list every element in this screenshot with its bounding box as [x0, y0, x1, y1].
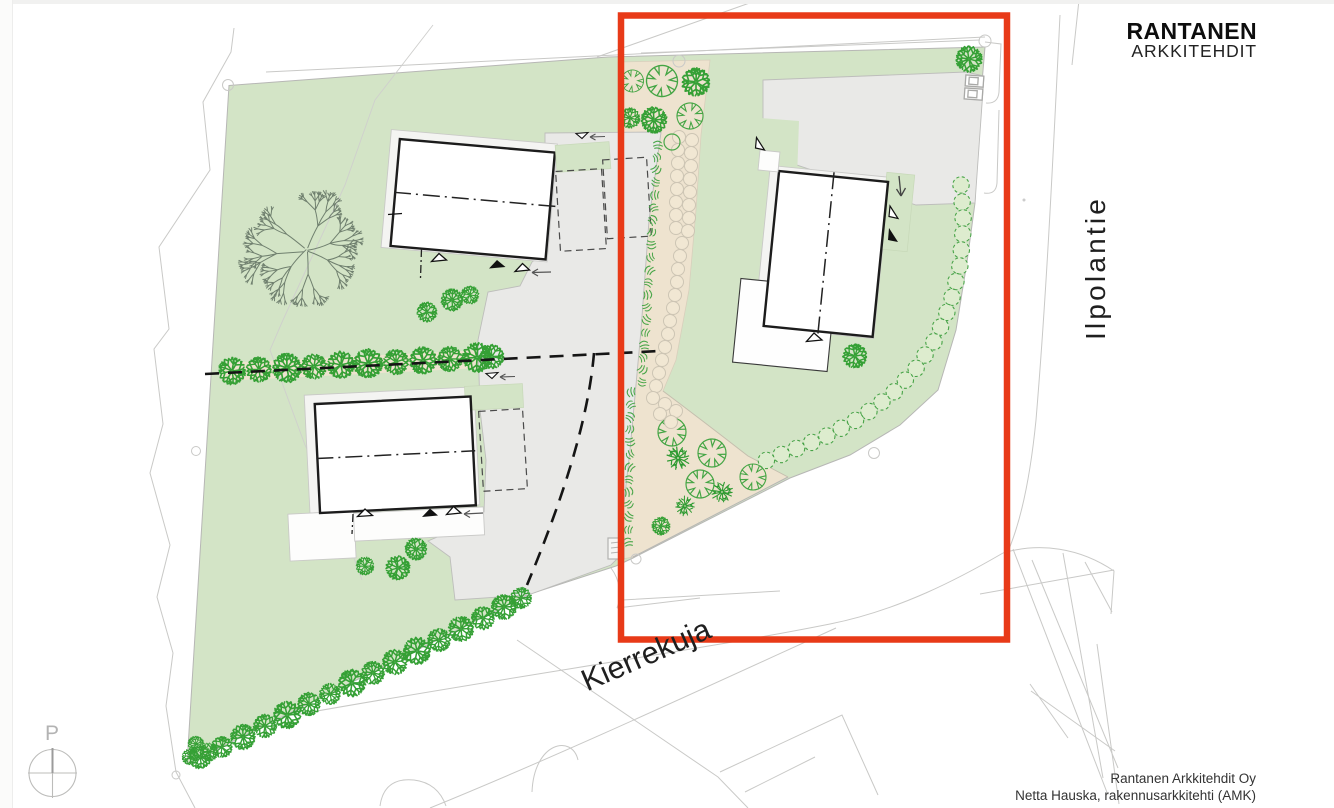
svg-text:Kierrekuja: Kierrekuja: [576, 612, 716, 698]
svg-text:P: P: [45, 722, 59, 745]
svg-text:Rantanen Arkkitehdit Oy: Rantanen Arkkitehdit Oy: [1110, 771, 1256, 786]
svg-text:ARKKITEHDIT: ARKKITEHDIT: [1131, 41, 1257, 61]
svg-text:Ilpolantie: Ilpolantie: [1080, 196, 1111, 340]
svg-text:Netta Hauska, rakennusarkkiteh: Netta Hauska, rakennusarkkitehti (AMK): [1015, 788, 1256, 803]
